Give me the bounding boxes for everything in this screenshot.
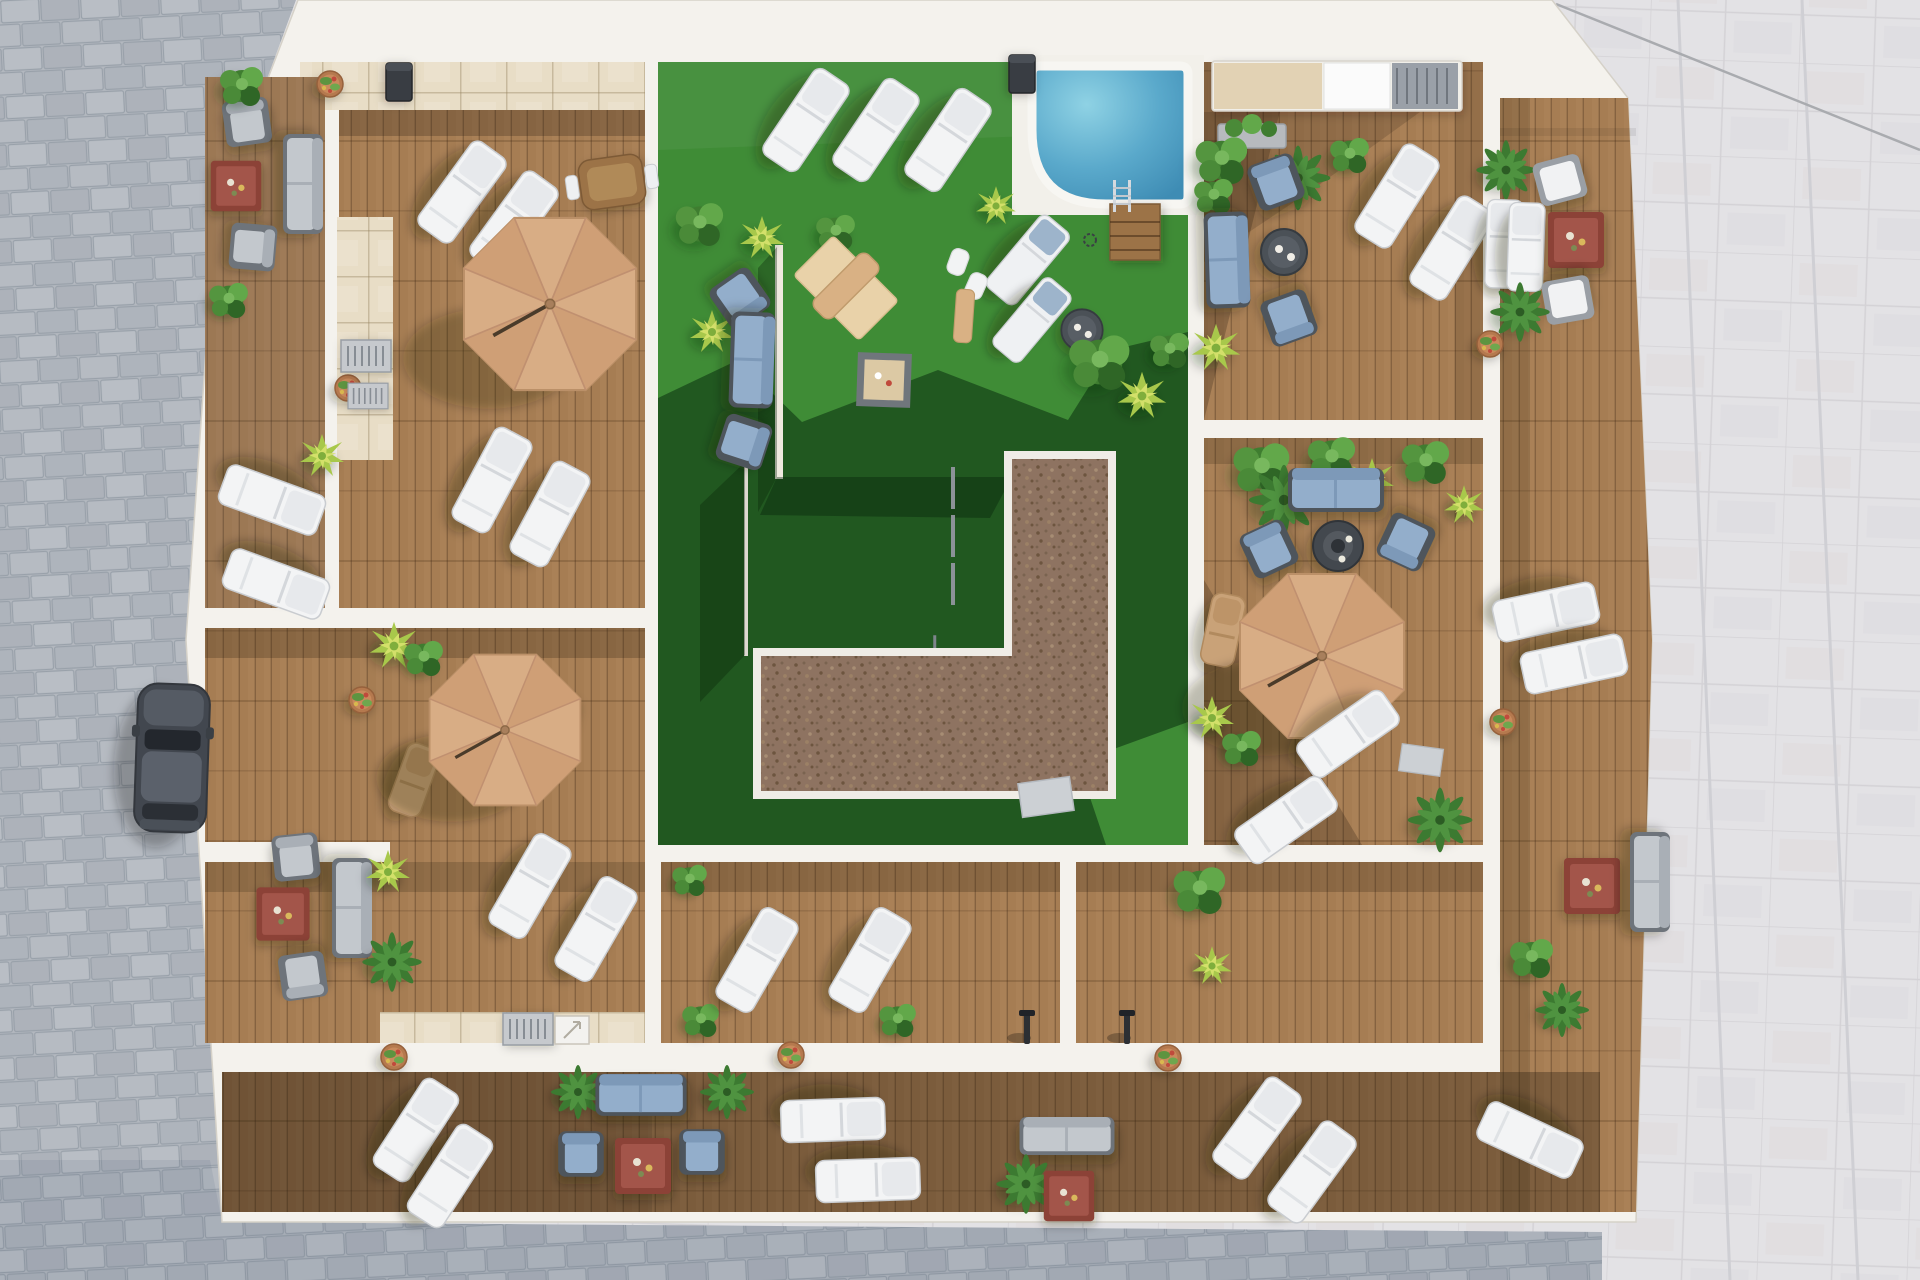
shrub <box>1169 867 1225 916</box>
skylight <box>952 564 954 604</box>
gray-sofa <box>1016 1117 1119 1165</box>
shrub <box>671 203 723 248</box>
blue-armchair <box>556 1131 605 1184</box>
rooftop-aerial-render <box>0 0 1920 1280</box>
wall-shadow <box>661 862 1060 892</box>
red-coffee-table <box>209 161 263 217</box>
shrub <box>216 67 263 108</box>
shrub <box>1191 137 1247 186</box>
gray-armchair <box>220 219 278 274</box>
walk-shadow <box>339 110 645 136</box>
skylight <box>952 516 954 556</box>
blue-sofa <box>720 307 776 413</box>
shrub <box>876 1004 916 1039</box>
skylight <box>952 468 954 508</box>
red-coffee-table <box>1546 212 1606 274</box>
scene-canvas <box>0 0 1920 1280</box>
shrub <box>669 865 707 898</box>
blue-sofa <box>1284 468 1388 520</box>
blue-sofa <box>592 1074 691 1123</box>
stair-core-roof <box>745 462 747 655</box>
shrub <box>1147 333 1189 370</box>
shrub <box>1327 138 1369 175</box>
red-coffee-table <box>1042 1171 1096 1227</box>
deck-bench <box>953 289 975 343</box>
terrace-mid-left <box>205 628 645 1043</box>
blue-sofa <box>1195 207 1251 313</box>
shrub <box>1397 441 1449 486</box>
ac-unit-grille <box>348 383 390 410</box>
wall-shadow <box>1076 862 1483 892</box>
gray-armchair <box>269 832 324 891</box>
pergola-deck-platform <box>777 247 781 477</box>
kitchenette-strip <box>337 217 393 460</box>
outdoor-kitchen-counter <box>1212 61 1464 115</box>
shrub <box>206 283 248 320</box>
travertine-walk-top <box>300 62 645 110</box>
pool-steps <box>1110 204 1163 263</box>
far-right-step <box>1500 128 1636 136</box>
blue-armchair <box>677 1129 726 1182</box>
ac-unit-grille <box>503 1013 555 1047</box>
shrub <box>1219 731 1261 768</box>
shrub <box>679 1004 719 1039</box>
roof-hatch-panel <box>555 1016 589 1044</box>
utility-box <box>1007 55 1035 95</box>
gray-sofa <box>273 130 323 238</box>
paving-slab <box>1399 744 1444 777</box>
paving-slab <box>1018 777 1074 818</box>
platform-shadow-on-lawn <box>760 477 1012 518</box>
ac-unit-grille <box>341 340 393 374</box>
gray-sofa <box>1620 828 1670 936</box>
white-armchair <box>1538 266 1596 326</box>
shrub <box>1506 939 1553 980</box>
shrub <box>1064 335 1130 392</box>
framed-deck-rug <box>856 352 912 408</box>
red-coffee-table <box>255 887 312 946</box>
utility-box <box>384 63 412 103</box>
gray-sofa <box>322 854 372 962</box>
red-coffee-table <box>1562 858 1622 920</box>
shrub <box>401 641 443 678</box>
red-coffee-table <box>613 1138 673 1200</box>
pool <box>1032 66 1188 204</box>
gray-armchair <box>274 942 331 1002</box>
